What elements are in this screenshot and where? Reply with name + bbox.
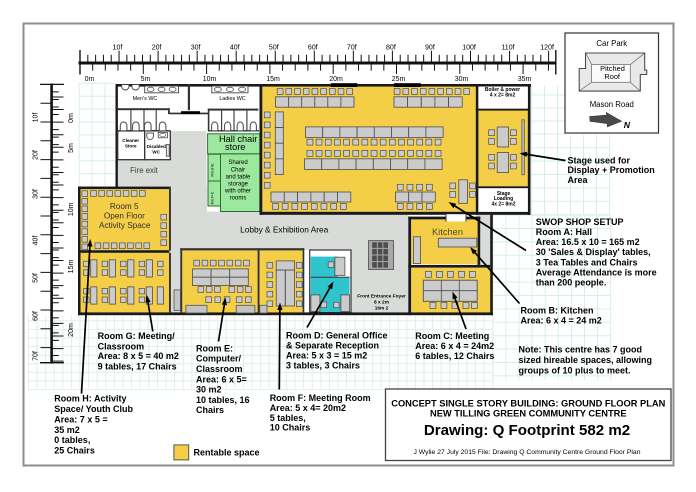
svg-text:with other: with other <box>224 189 251 195</box>
svg-text:Area: Area <box>568 175 589 185</box>
svg-text:0m: 0m <box>68 113 75 123</box>
svg-text:NEW TILLING GREEN COMMUNITY CE: NEW TILLING GREEN COMMUNITY CENTRE <box>430 408 627 418</box>
svg-text:0m: 0m <box>85 76 95 83</box>
svg-text:10m: 10m <box>203 76 217 83</box>
svg-text:10f: 10f <box>113 45 123 52</box>
svg-text:30f: 30f <box>33 189 40 199</box>
svg-text:10 tables, 16: 10 tables, 16 <box>196 395 250 405</box>
svg-text:9 tables, 17 Chairs: 9 tables, 17 Chairs <box>98 361 177 371</box>
svg-text:Area: 8 x 5 = 40 m2: Area: 8 x 5 = 40 m2 <box>98 351 179 361</box>
svg-text:60f: 60f <box>308 45 318 52</box>
svg-text:Room E:: Room E: <box>196 343 233 353</box>
svg-text:15m: 15m <box>266 76 280 83</box>
svg-text:15m: 15m <box>68 260 75 274</box>
svg-text:storage: storage <box>228 182 249 188</box>
svg-text:10f: 10f <box>33 113 40 123</box>
svg-text:Ladies WC: Ladies WC <box>219 96 245 102</box>
svg-text:80f: 80f <box>386 45 396 52</box>
svg-text:Fire exit: Fire exit <box>130 166 159 175</box>
svg-text:3 tables, 3 Chairs: 3 tables, 3 Chairs <box>286 361 360 371</box>
svg-text:Note: This centre has 7 good: Note: This centre has 7 good <box>519 344 643 354</box>
svg-text:70f: 70f <box>33 351 40 361</box>
svg-text:Average Attendance is more: Average Attendance is more <box>536 268 657 278</box>
svg-text:35m: 35m <box>518 76 532 83</box>
svg-text:30 m2: 30 m2 <box>196 385 222 395</box>
svg-text:6 tables, 12 Chairs: 6 tables, 12 Chairs <box>415 351 494 361</box>
svg-text:Area: 7 x 5 =: Area: 7 x 5 = <box>54 414 107 424</box>
svg-text:Activity Space: Activity Space <box>99 221 151 230</box>
svg-text:110f: 110f <box>501 45 514 52</box>
svg-text:40f: 40f <box>230 45 240 52</box>
svg-text:Area: 16.5 x 10 = 165 m2: Area: 16.5 x 10 = 165 m2 <box>536 237 640 247</box>
svg-text:Space/ Youth Club: Space/ Youth Club <box>54 404 133 414</box>
svg-text:and table: and table <box>226 174 251 180</box>
svg-text:40f: 40f <box>33 236 40 246</box>
svg-text:Stage used for: Stage used for <box>568 155 631 165</box>
svg-text:35 m2: 35 m2 <box>54 425 80 435</box>
svg-text:Room A: Hall: Room A: Hall <box>536 227 592 237</box>
svg-text:50f: 50f <box>33 273 40 283</box>
svg-text:N: N <box>624 120 631 130</box>
svg-text:Display + Promotion: Display + Promotion <box>568 165 655 175</box>
svg-text:Area: 6 x 4 = 24 m2: Area: 6 x 4 = 24 m2 <box>521 316 602 326</box>
svg-text:100f: 100f <box>462 45 476 52</box>
svg-text:Men's WC: Men's WC <box>133 96 158 102</box>
svg-text:Room G: Meeting/: Room G: Meeting/ <box>98 331 175 341</box>
svg-text:Classroom: Classroom <box>98 341 145 351</box>
svg-text:0 tables,: 0 tables, <box>54 435 90 445</box>
svg-text:20f: 20f <box>152 45 162 52</box>
svg-text:8 x 2m: 8 x 2m <box>374 299 389 305</box>
svg-text:Area: 6 x 4 = 24m2: Area: 6 x 4 = 24m2 <box>415 341 494 351</box>
svg-text:Car Park: Car Park <box>596 39 627 48</box>
svg-text:70f: 70f <box>347 45 357 52</box>
svg-text:16m 2: 16m 2 <box>375 305 389 311</box>
svg-text:Area: 5 x 3 = 15 m2: Area: 5 x 3 = 15 m2 <box>286 351 367 361</box>
svg-text:90f: 90f <box>425 45 435 52</box>
svg-text:rooms: rooms <box>230 196 247 202</box>
svg-text:60f: 60f <box>33 311 40 321</box>
svg-text:5m: 5m <box>141 76 151 83</box>
svg-text:Area: 6 x 5=: Area: 6 x 5= <box>196 374 247 384</box>
svg-text:Room 5: Room 5 <box>110 202 139 211</box>
svg-text:Room D: General Office: Room D: General Office <box>286 331 388 341</box>
svg-text:50f: 50f <box>269 45 279 52</box>
svg-text:Area: 5 x 4= 20m2: Area: 5 x 4= 20m2 <box>270 403 346 413</box>
svg-text:Rm F+C: Rm F+C <box>211 191 215 204</box>
svg-text:30f: 30f <box>191 45 201 52</box>
svg-text:CONCEPT SINGLE STORY BUILDING:: CONCEPT SINGLE STORY BUILDING: GROUND FL… <box>391 398 665 408</box>
svg-text:Shared: Shared <box>228 160 247 166</box>
svg-text:J Wylie 27 July 2015 File: Dr: J Wylie 27 July 2015 File: Drawing Q Com… <box>414 449 641 456</box>
svg-text:SWOP SHOP SETUP: SWOP SHOP SETUP <box>536 217 624 227</box>
svg-text:Roof: Roof <box>604 72 621 81</box>
svg-text:20f: 20f <box>33 150 40 160</box>
svg-text:30 'Sales & Display' tables,: 30 'Sales & Display' tables, <box>536 247 651 257</box>
svg-text:& Separate Reception: & Separate Reception <box>286 340 379 350</box>
svg-text:groups of 10 plus to meet.: groups of 10 plus to meet. <box>519 365 631 375</box>
svg-text:Rentable space: Rentable space <box>194 448 260 458</box>
svg-text:Room C: Meeting: Room C: Meeting <box>415 331 489 341</box>
svg-text:30m: 30m <box>455 76 469 83</box>
svg-text:Computer/: Computer/ <box>196 354 241 364</box>
svg-text:3 Tea Tables and Chairs: 3 Tea Tables and Chairs <box>536 257 638 267</box>
svg-text:25m: 25m <box>392 76 406 83</box>
svg-text:Lobby & Exhibition Area: Lobby & Exhibition Area <box>240 224 328 234</box>
svg-text:5m: 5m <box>68 143 75 153</box>
svg-text:Classroom: Classroom <box>196 364 243 374</box>
svg-text:Room F: Meeting Room: Room F: Meeting Room <box>270 393 371 403</box>
svg-text:120f: 120f <box>540 45 554 52</box>
svg-text:Mason Road: Mason Road <box>590 100 634 109</box>
svg-text:than 200 people.: than 200 people. <box>536 278 607 288</box>
svg-text:store: store <box>225 142 245 152</box>
svg-text:5 tables,: 5 tables, <box>270 413 306 423</box>
svg-text:4x 2= 8m2: 4x 2= 8m2 <box>491 201 515 207</box>
svg-text:Rm G+E: Rm G+E <box>211 163 215 177</box>
svg-text:10m: 10m <box>68 202 75 216</box>
svg-text:20m: 20m <box>329 76 343 83</box>
svg-text:Store: Store <box>125 143 137 148</box>
svg-text:WC: WC <box>152 149 160 154</box>
svg-text:Cleaner: Cleaner <box>122 138 139 143</box>
svg-text:Chair: Chair <box>231 167 245 173</box>
svg-text:4 x 2= 8m2: 4 x 2= 8m2 <box>490 93 516 99</box>
svg-text:Drawing: Q Footprint 582 m2: Drawing: Q Footprint 582 m2 <box>424 422 630 439</box>
svg-text:Front Entrance Foyer: Front Entrance Foyer <box>357 293 406 299</box>
svg-text:Open Floor: Open Floor <box>104 212 145 221</box>
svg-text:Room H: Activity: Room H: Activity <box>54 394 126 404</box>
svg-text:Kitchen: Kitchen <box>432 227 463 237</box>
svg-text:10 Chairs: 10 Chairs <box>270 423 311 433</box>
svg-text:Disabled: Disabled <box>147 144 166 149</box>
svg-text:sized hireable spaces, allowin: sized hireable spaces, allowing <box>519 355 653 365</box>
svg-text:Room B: Kitchen: Room B: Kitchen <box>521 306 594 316</box>
svg-text:20m: 20m <box>68 323 75 337</box>
svg-text:Chairs: Chairs <box>196 405 224 415</box>
svg-text:25 Chairs: 25 Chairs <box>54 446 95 456</box>
